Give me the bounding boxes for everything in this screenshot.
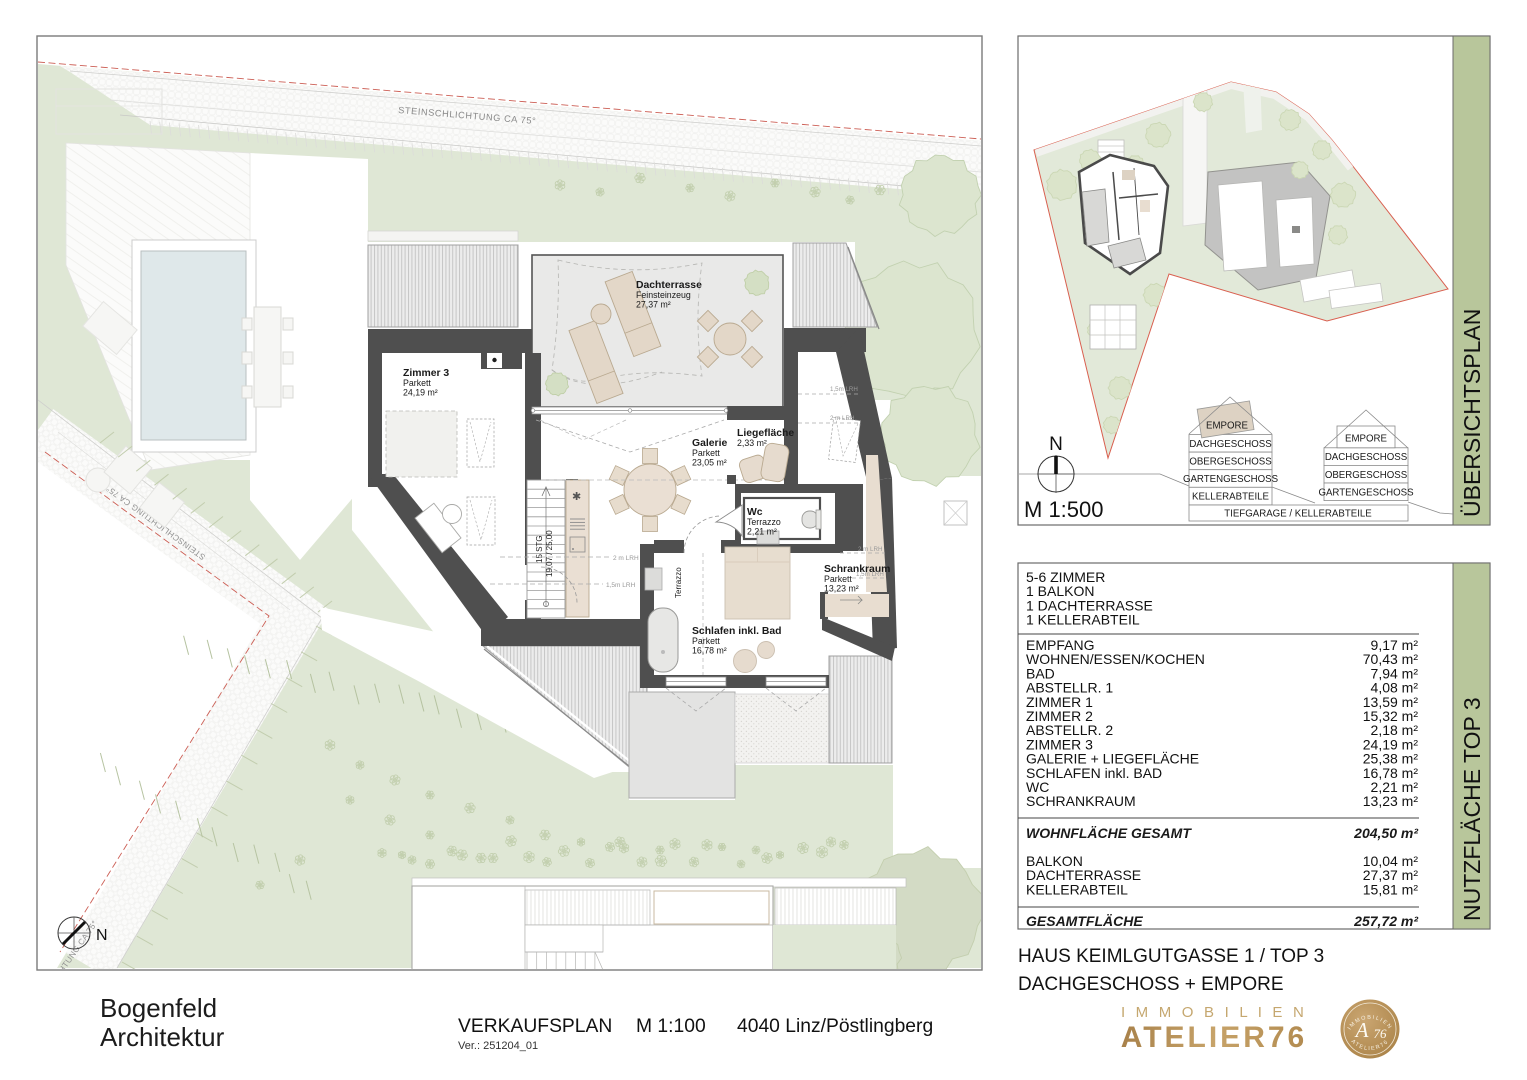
svg-text:TIEFGARAGE / KELLERABTEILE: TIEFGARAGE / KELLERABTEILE xyxy=(1224,508,1372,519)
svg-text:15,81 m²: 15,81 m² xyxy=(1363,881,1419,897)
svg-text:27,37 m²: 27,37 m² xyxy=(636,300,671,310)
svg-text:HAUS KEIMLGUTGASSE 1 / TOP 3: HAUS KEIMLGUTGASSE 1 / TOP 3 xyxy=(1018,946,1324,967)
svg-text:13,23 m²: 13,23 m² xyxy=(1363,793,1419,809)
svg-text:KELLERABTEIL: KELLERABTEIL xyxy=(1026,881,1128,897)
svg-text:VERKAUFSPLAN: VERKAUFSPLAN xyxy=(458,1016,612,1037)
svg-text:M 1:100: M 1:100 xyxy=(636,1016,706,1037)
svg-text:GARTENGESCHOSS: GARTENGESCHOSS xyxy=(1183,474,1279,485)
svg-text:76: 76 xyxy=(1374,1026,1388,1041)
svg-text:23,05 m²: 23,05 m² xyxy=(692,458,727,468)
svg-text:✱: ✱ xyxy=(572,491,581,503)
svg-text:EMPORE: EMPORE xyxy=(1345,434,1388,445)
svg-text:GESAMTFLÄCHE: GESAMTFLÄCHE xyxy=(1026,913,1143,929)
svg-text:N: N xyxy=(96,927,108,944)
svg-text:13,23 m²: 13,23 m² xyxy=(824,584,859,594)
svg-text:ÜBERSICHTSPLAN: ÜBERSICHTSPLAN xyxy=(1459,309,1485,517)
svg-text:Terrazzo: Terrazzo xyxy=(747,517,781,527)
svg-text:204,50 m²: 204,50 m² xyxy=(1353,825,1418,841)
svg-text:16,78 m²: 16,78 m² xyxy=(692,646,727,656)
svg-text:DACHGESCHOSS: DACHGESCHOSS xyxy=(1189,439,1272,450)
svg-text:24,19 m²: 24,19 m² xyxy=(403,388,438,398)
svg-text:2 m LRH: 2 m LRH xyxy=(858,546,882,553)
svg-text:OBERGESCHOSS: OBERGESCHOSS xyxy=(1189,457,1272,468)
svg-text:Parkett: Parkett xyxy=(824,574,852,584)
svg-text:GARTENGESCHOSS: GARTENGESCHOSS xyxy=(1318,487,1414,498)
svg-text:1 KELLERABTEIL: 1 KELLERABTEIL xyxy=(1026,612,1140,628)
svg-text:4040 Linz/Pöstlingberg: 4040 Linz/Pöstlingberg xyxy=(737,1016,933,1037)
svg-text:2 m LRH: 2 m LRH xyxy=(830,415,854,422)
svg-text:WOHNFLÄCHE GESAMT: WOHNFLÄCHE GESAMT xyxy=(1026,825,1192,841)
svg-text:DACHGESCHOSS + EMPORE: DACHGESCHOSS + EMPORE xyxy=(1018,974,1284,995)
svg-text:2 m LRH: 2 m LRH xyxy=(613,555,639,562)
svg-text:15 STG: 15 STG xyxy=(535,535,544,563)
svg-text:DACHGESCHOSS: DACHGESCHOSS xyxy=(1325,452,1408,463)
svg-text:Parkett: Parkett xyxy=(403,378,431,388)
svg-text:Parkett: Parkett xyxy=(692,448,720,458)
svg-text:Bogenfeld: Bogenfeld xyxy=(100,993,217,1023)
svg-text:1,5m LRH: 1,5m LRH xyxy=(830,386,858,393)
svg-text:257,72 m²: 257,72 m² xyxy=(1353,913,1418,929)
svg-text:KELLERABTEILE: KELLERABTEILE xyxy=(1192,492,1270,503)
svg-text:1,5m LRH: 1,5m LRH xyxy=(606,582,636,589)
svg-text:Ver.: 251204_01: Ver.: 251204_01 xyxy=(458,1040,538,1052)
svg-text:Terrazzo: Terrazzo xyxy=(674,567,683,598)
svg-text:ATELIER76: ATELIER76 xyxy=(1121,1021,1307,1054)
svg-text:Feinsteinzeug: Feinsteinzeug xyxy=(636,290,691,300)
svg-text:2,21 m²: 2,21 m² xyxy=(747,527,777,537)
svg-text:SCHRANKRAUM: SCHRANKRAUM xyxy=(1026,793,1136,809)
svg-text:1,5m LRH: 1,5m LRH xyxy=(856,571,884,578)
svg-text:EMPORE: EMPORE xyxy=(1206,421,1249,432)
svg-text:N: N xyxy=(1049,434,1063,455)
svg-text:I M M O B I L I E N: I M M O B I L I E N xyxy=(1121,1004,1307,1021)
svg-text:NUTZFLÄCHE TOP 3: NUTZFLÄCHE TOP 3 xyxy=(1459,697,1485,921)
svg-text:Architektur: Architektur xyxy=(100,1022,225,1052)
svg-text:19,07 / 25,00: 19,07 / 25,00 xyxy=(545,530,554,577)
svg-text:M 1:500: M 1:500 xyxy=(1024,497,1104,522)
svg-text:2,33 m²: 2,33 m² xyxy=(737,438,767,448)
svg-text:A: A xyxy=(1354,1018,1369,1042)
svg-text:Parkett: Parkett xyxy=(692,636,720,646)
svg-text:OBERGESCHOSS: OBERGESCHOSS xyxy=(1325,470,1408,481)
